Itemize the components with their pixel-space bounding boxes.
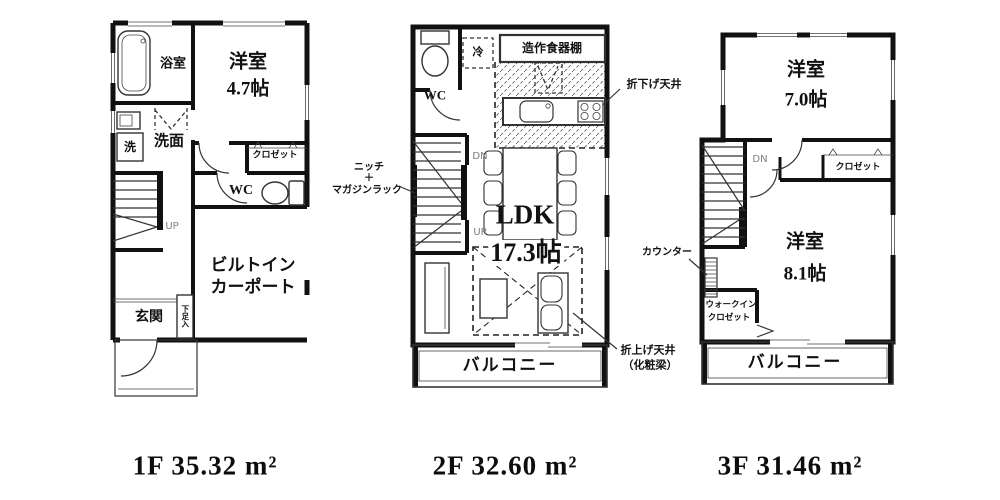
room-label-bathroom: 浴室 bbox=[160, 57, 186, 70]
window bbox=[890, 215, 896, 255]
window bbox=[128, 20, 172, 26]
label-shoe-cabinet: 下足入 bbox=[181, 305, 189, 328]
label-fridge: 冷 bbox=[473, 48, 484, 59]
stairs-down-label: DN bbox=[752, 155, 767, 165]
closet-hanger-line bbox=[823, 149, 893, 155]
label-balcony: バルコニー bbox=[748, 354, 843, 371]
sliding-door bbox=[770, 338, 845, 346]
door-arc-western-room bbox=[199, 143, 229, 173]
room-size-western-room: 4.7帖 bbox=[227, 80, 270, 99]
toilet-icon bbox=[421, 31, 449, 76]
room-label-ldk: LDK bbox=[496, 202, 555, 229]
floorplan-3f: 洋室 7.0帖 DN クロゼット カウンター 洋室 8.1帖 ウォークイン クロ… bbox=[695, 15, 905, 415]
stair-treads bbox=[113, 181, 157, 241]
window bbox=[720, 70, 726, 105]
stairs-1f bbox=[113, 173, 163, 241]
label-wic-2: クロゼット bbox=[708, 313, 751, 322]
stair-wall-bar bbox=[739, 207, 745, 247]
vanity-sink bbox=[117, 112, 140, 129]
floor-area-label-1f: 1F 35.32 m² bbox=[133, 451, 278, 482]
room-label-carport-2: カーポート bbox=[211, 279, 296, 296]
label-counter: カウンター bbox=[642, 248, 692, 258]
entrance-step-line bbox=[113, 299, 177, 302]
room-label-closet: クロゼット bbox=[250, 151, 299, 160]
closet-wall bbox=[780, 155, 823, 180]
room-label-washer: 洗 bbox=[124, 141, 136, 153]
window bbox=[604, 237, 610, 270]
window bbox=[810, 32, 847, 38]
room-label-western-room: 洋室 bbox=[229, 53, 267, 72]
sofa bbox=[538, 273, 568, 333]
tv-board bbox=[425, 263, 449, 333]
room-size-ldk: 17.3帖 bbox=[488, 240, 564, 266]
floor-area-label-2f: 2F 32.60 m² bbox=[433, 451, 578, 482]
room-label-entrance: 玄関 bbox=[135, 311, 163, 325]
room-label-closet: クロゼット bbox=[833, 163, 882, 172]
coffee-table bbox=[480, 279, 507, 318]
label-wic-1: ウォークイン bbox=[705, 300, 756, 309]
label-niche-1: ニッチ bbox=[354, 163, 384, 173]
window bbox=[890, 60, 896, 100]
wic-door-mark bbox=[757, 325, 773, 337]
niche-magazine-rack-wall bbox=[411, 165, 417, 217]
room-label-wc: WC bbox=[229, 184, 253, 198]
bathtub bbox=[118, 31, 150, 95]
room-label-wc: WC bbox=[424, 89, 446, 102]
stairs-up-label: UP bbox=[473, 228, 486, 238]
stairs-up-label: UP bbox=[165, 222, 178, 232]
window bbox=[223, 20, 285, 26]
label-balcony: バルコニー bbox=[463, 357, 558, 374]
door-arc-entrance bbox=[121, 340, 157, 376]
label-niche-3: マガジンラック bbox=[332, 186, 402, 196]
window bbox=[110, 111, 116, 133]
folding-door bbox=[155, 108, 187, 130]
stair-wall-bar bbox=[157, 173, 163, 230]
floorplan-sheet: 浴室 洋室 4.7帖 洗面 洗 クロゼット WC UP ビルトイン カーポート … bbox=[0, 0, 1000, 500]
stair-treads bbox=[702, 145, 745, 244]
window bbox=[304, 85, 310, 120]
window bbox=[757, 32, 797, 38]
label-cupboard: 造作食器棚 bbox=[522, 42, 582, 54]
label-niche-2: ＋ bbox=[364, 174, 374, 184]
floorplan-1f: 浴室 洋室 4.7帖 洗面 洗 クロゼット WC UP ビルトイン カーポート … bbox=[105, 15, 315, 415]
kitchen-counter bbox=[503, 98, 605, 125]
stairs-down-label: DN bbox=[472, 152, 487, 162]
room-size-western-7: 7.0帖 bbox=[785, 91, 828, 110]
floorplan-1f-drawing bbox=[105, 15, 315, 415]
room-size-western-8: 8.1帖 bbox=[784, 265, 827, 284]
floor-area-label-3f: 3F 31.46 m² bbox=[718, 451, 863, 482]
door-arc-room8 bbox=[750, 170, 777, 197]
room-label-western-7: 洋室 bbox=[787, 61, 825, 80]
window bbox=[110, 53, 116, 83]
floorplan-2f: WC 冷 造作食器棚 折下げ天井 ニッチ ＋ マガジンラック DN UP LDK… bbox=[405, 15, 615, 415]
stair-wall-bar bbox=[461, 165, 467, 220]
window bbox=[604, 158, 610, 195]
toilet-icon bbox=[262, 181, 304, 205]
door-arc-room7 bbox=[772, 140, 802, 170]
room-label-carport-1: ビルトイン bbox=[211, 257, 296, 274]
room-label-washroom: 洗面 bbox=[154, 135, 184, 150]
room-label-western-8: 洋室 bbox=[786, 233, 824, 252]
sliding-door bbox=[515, 341, 582, 349]
stair-treads bbox=[413, 141, 461, 248]
